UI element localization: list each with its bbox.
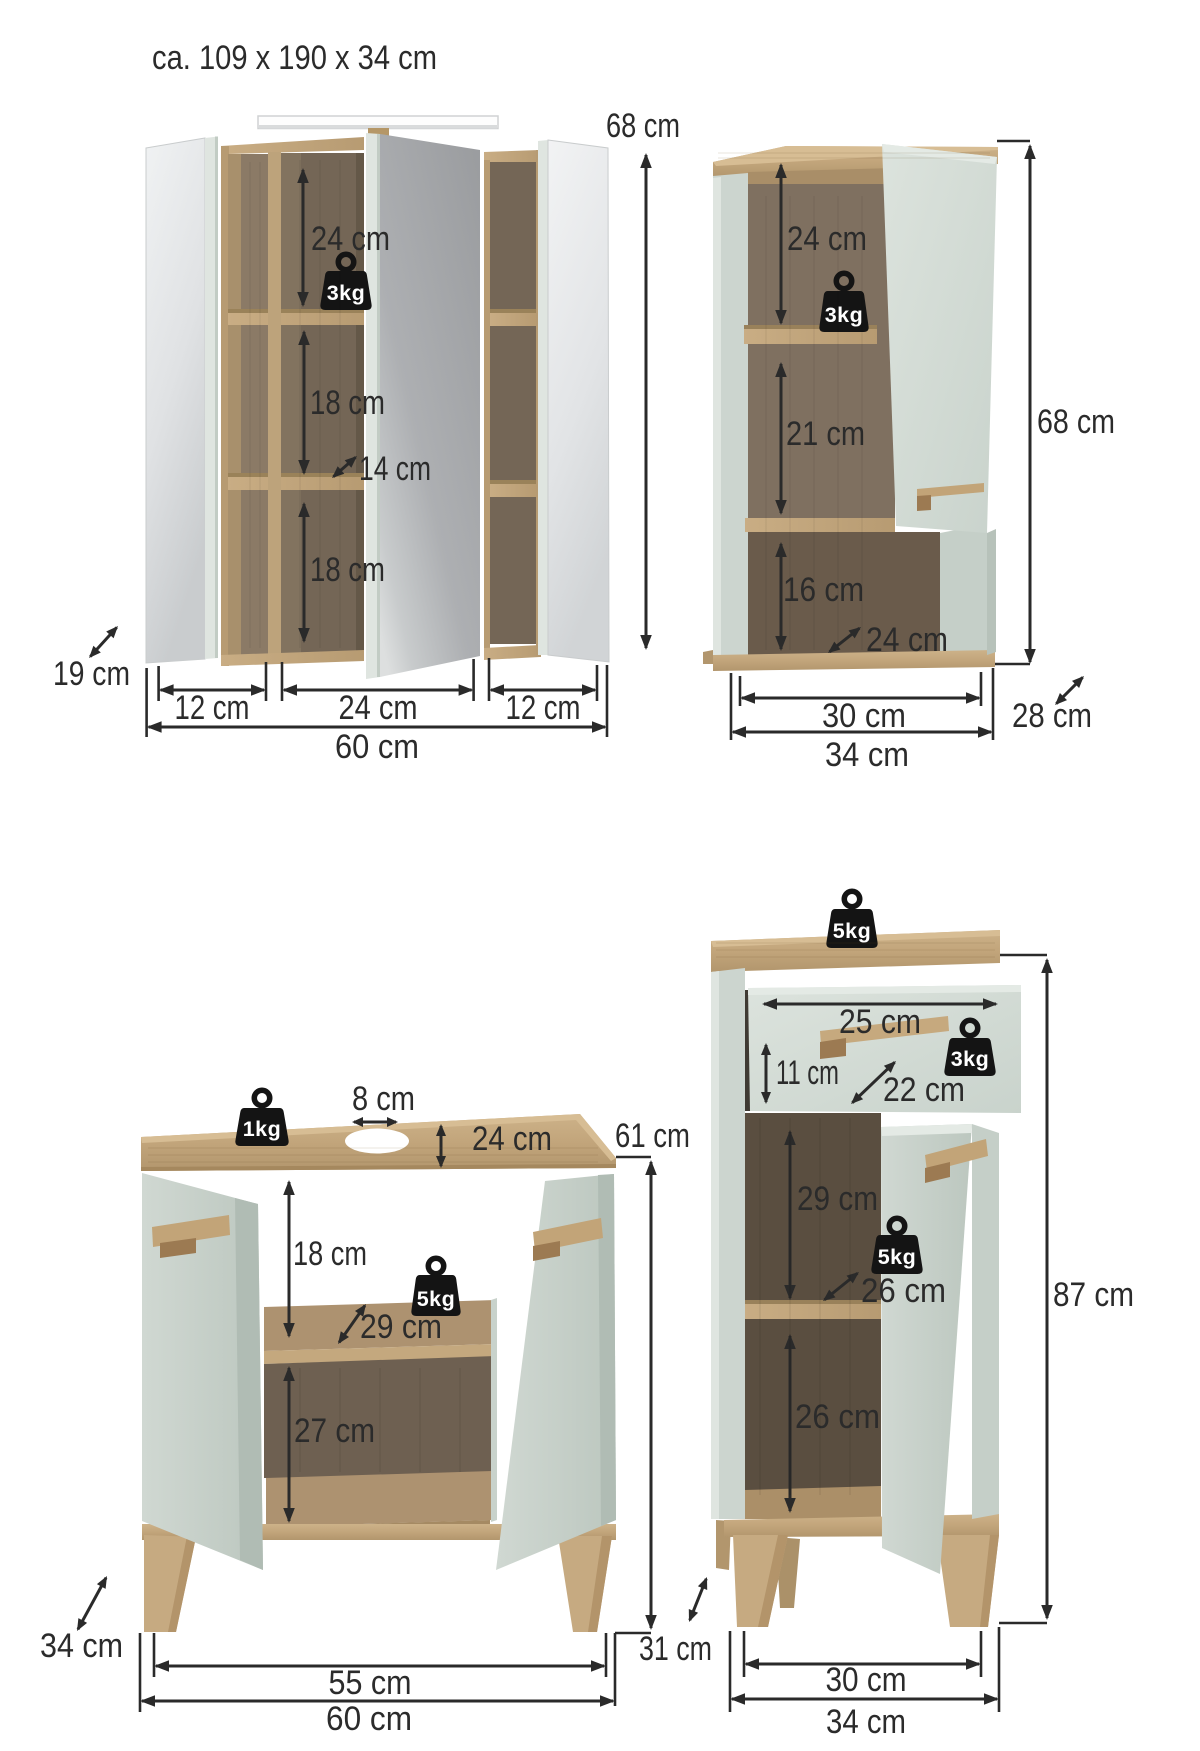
svg-text:60 cm: 60 cm: [326, 1700, 412, 1738]
svg-text:25 cm: 25 cm: [839, 1003, 921, 1041]
svg-text:24 cm: 24 cm: [787, 220, 867, 258]
svg-text:55 cm: 55 cm: [329, 1664, 412, 1702]
svg-text:18 cm: 18 cm: [310, 384, 385, 422]
svg-text:ca. 109 x 190 x 34 cm: ca. 109 x 190 x 34 cm: [152, 39, 437, 77]
svg-text:22 cm: 22 cm: [883, 1071, 965, 1109]
svg-text:18 cm: 18 cm: [310, 551, 385, 589]
svg-text:30 cm: 30 cm: [822, 697, 906, 735]
svg-text:3kg: 3kg: [951, 1047, 990, 1071]
svg-text:1kg: 1kg: [243, 1117, 282, 1141]
svg-text:68 cm: 68 cm: [606, 107, 680, 145]
svg-text:12 cm: 12 cm: [506, 689, 581, 727]
svg-text:29 cm: 29 cm: [797, 1180, 878, 1218]
svg-text:24 cm: 24 cm: [339, 689, 418, 727]
svg-text:60 cm: 60 cm: [335, 728, 419, 766]
svg-text:29 cm: 29 cm: [360, 1308, 442, 1346]
svg-text:24 cm: 24 cm: [472, 1120, 552, 1158]
svg-text:5kg: 5kg: [833, 919, 872, 943]
svg-text:34 cm: 34 cm: [825, 736, 909, 774]
svg-text:16 cm: 16 cm: [783, 571, 864, 609]
svg-text:12 cm: 12 cm: [175, 689, 250, 727]
svg-text:27 cm: 27 cm: [294, 1412, 375, 1450]
svg-text:11 cm: 11 cm: [776, 1054, 839, 1092]
svg-text:19 cm: 19 cm: [53, 655, 130, 693]
svg-text:26 cm: 26 cm: [861, 1272, 946, 1310]
svg-text:14 cm: 14 cm: [359, 450, 431, 488]
svg-text:28 cm: 28 cm: [1012, 697, 1092, 735]
svg-text:61 cm: 61 cm: [615, 1117, 690, 1155]
svg-text:31 cm: 31 cm: [639, 1630, 712, 1668]
svg-text:3kg: 3kg: [825, 303, 864, 327]
svg-text:34 cm: 34 cm: [826, 1703, 906, 1741]
svg-text:21 cm: 21 cm: [786, 415, 865, 453]
svg-text:24 cm: 24 cm: [866, 621, 948, 659]
svg-text:24 cm: 24 cm: [311, 220, 390, 258]
svg-text:87 cm: 87 cm: [1053, 1276, 1134, 1314]
svg-text:8 cm: 8 cm: [352, 1080, 415, 1118]
svg-text:68 cm: 68 cm: [1037, 403, 1115, 441]
svg-text:5kg: 5kg: [878, 1245, 917, 1269]
svg-text:26 cm: 26 cm: [795, 1398, 880, 1436]
svg-text:30 cm: 30 cm: [826, 1661, 907, 1699]
svg-text:34 cm: 34 cm: [40, 1627, 123, 1665]
svg-text:18 cm: 18 cm: [293, 1235, 367, 1273]
svg-text:3kg: 3kg: [327, 281, 366, 305]
